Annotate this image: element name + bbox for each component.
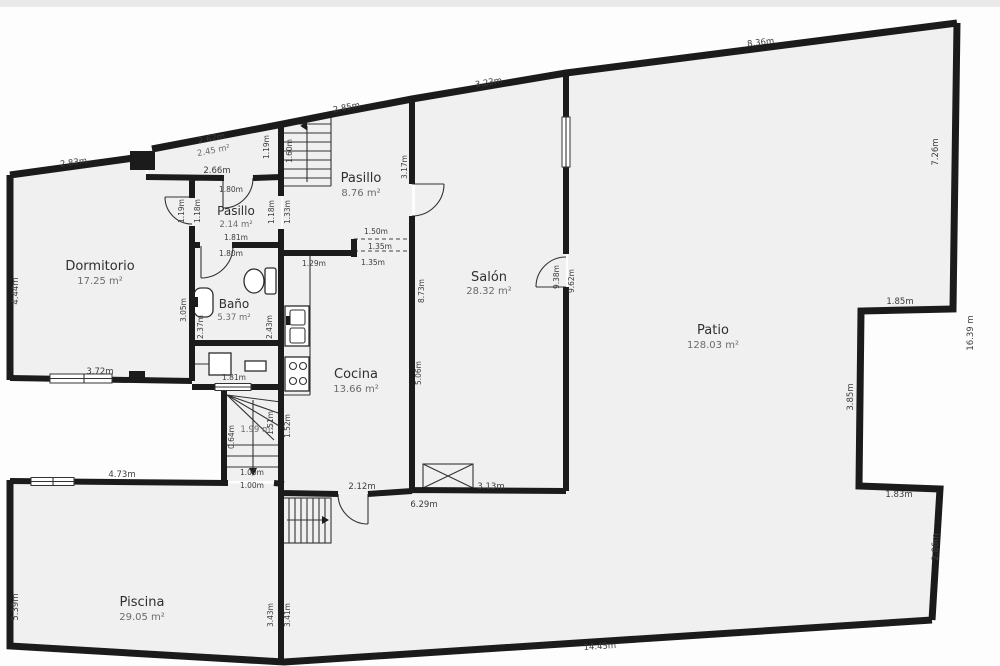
stove-icon [285,357,309,391]
room-name-patio: Patio [697,323,729,338]
room-name-bano: Baño [219,297,250,311]
dim-label: 14.45m [583,641,616,653]
dim-label: 1.00m [240,468,264,477]
dim-label: 7.26m [931,138,941,165]
kitchen-tap-icon [286,316,290,325]
room-area-label-piscina: 29.05 m² [119,612,165,623]
room-name-dormitorio: Dormitorio [65,259,134,274]
dim-label: 1.81m [224,233,248,242]
dim-label: 16.39 m [966,315,976,350]
dim-label: 1.60m [285,139,294,163]
room-area-label-dormitorio: 17.25 m² [77,276,123,287]
floor-plan-page: Dormitorio 17.25 m² 2.45 m² Pasillo 2.14… [0,0,1000,666]
toilet-tank-icon [265,268,276,294]
room-area-label-patio: 128.03 m² [687,340,739,351]
dim-label: 5.06m [414,361,423,385]
dim-label: 5.39m [11,593,21,620]
dim-label: 2.66m [203,166,230,176]
room-name-pasillo-big: Pasillo [341,171,382,186]
wall-notch [130,151,155,170]
room-area-label-salon: 28.32 m² [466,286,512,297]
dim-label: 1.85m [886,297,913,307]
dim-label: 3.43m [266,603,275,627]
room-area-piscina [10,481,284,662]
room-name-cocina: Cocina [334,367,378,382]
dim-label: 1.50m [364,227,388,236]
dim-label: 1.18m [267,200,276,224]
dim-label: 2.86m [931,533,941,560]
window-utility [215,384,251,391]
dim-label: 6.29m [410,500,437,510]
dim-label: 8.73m [417,279,426,303]
dim-label: 3.72m [86,367,113,377]
dim-label: 3.85m [846,383,856,410]
dim-label: 4.73m [108,470,135,480]
dim-label: 9.62m [567,269,576,293]
dim-label: 0.64m [227,425,236,449]
dim-label: 3.05m [179,298,188,322]
floor-plan-svg: Dormitorio 17.25 m² 2.45 m² Pasillo 2.14… [0,0,1000,666]
shelf-icon [245,361,266,371]
room-area-label-bano: 5.37 m² [217,313,250,323]
dim-label: 1.80m [219,185,243,194]
dim-label: 3.13m [477,482,504,492]
dim-label: 4.44m [11,277,21,304]
dim-label: 1.33m [283,200,292,224]
room-area-label-cocina: 13.66 m² [333,384,379,395]
dim-label: 1.35m [361,258,385,267]
dim-label: 2.37m [196,315,205,339]
dim-label: 1.29m [302,259,326,268]
washer-icon [209,353,231,375]
room-name-salon: Salón [471,270,507,285]
dim-label: 1.19m [177,199,186,223]
toilet-icon [244,269,264,293]
dim-label: 2.12m [348,482,375,492]
dim-label: 1.19m [262,135,271,159]
room-area-label-pasillo-big: 8.76 m² [341,188,380,199]
window-salon [562,117,570,167]
dim-label: 1.35m [368,242,392,251]
room-area-label-pasillo-small: 2.14 m² [219,220,252,230]
dim-label: 2.43m [265,315,274,339]
dim-label: 1.80m [219,249,243,258]
dim-label: 1.52m [283,414,292,438]
window-piscina [31,478,74,486]
dim-label: 3.41m [283,603,292,627]
bottom-border-strip [0,0,1000,7]
dim-label: 1.18m [193,199,202,223]
room-name-piscina: Piscina [120,595,165,610]
dim-label: 1.83m [885,490,912,500]
room-areas [10,23,957,662]
dim-label: 9.38m [552,265,561,289]
dim-label: 1.00m [240,481,264,490]
dim-label: 1.81m [222,373,246,382]
dim-label: 1.51m [266,411,275,435]
dim-label: 3.17m [400,155,409,179]
room-name-pasillo-small: Pasillo [217,204,255,218]
wall-pillar [129,371,145,382]
